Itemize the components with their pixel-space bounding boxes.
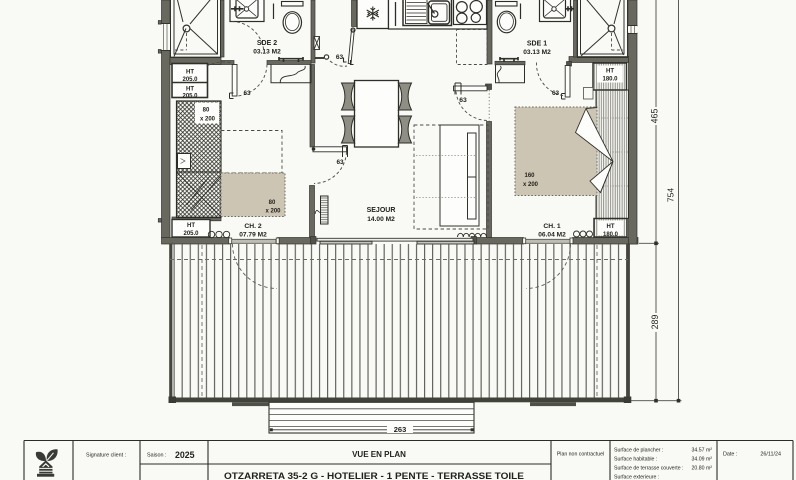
svg-text:34.09 m²: 34.09 m² xyxy=(692,457,713,463)
svg-text:Surface de plancher :: Surface de plancher : xyxy=(614,448,663,454)
svg-text:Surface de terrasse couverte :: Surface de terrasse couverte : xyxy=(614,466,684,472)
svg-text:80: 80 xyxy=(269,200,276,206)
svg-text:HT: HT xyxy=(186,70,194,76)
svg-text:180.0: 180.0 xyxy=(602,77,618,83)
svg-text:Saison :: Saison : xyxy=(147,453,166,459)
svg-text:465: 465 xyxy=(649,109,659,124)
svg-text:63: 63 xyxy=(336,54,344,61)
svg-text:754: 754 xyxy=(666,188,676,202)
svg-text:OTZARRETA 35-2 G - HOTELIER -: OTZARRETA 35-2 G - HOTELIER - 1 PENTE - … xyxy=(224,471,524,480)
svg-text:SDE 1: SDE 1 xyxy=(527,41,547,48)
svg-text:205.0: 205.0 xyxy=(182,94,198,100)
svg-text:VUE EN PLAN: VUE EN PLAN xyxy=(352,450,406,459)
svg-text:34.57 m²: 34.57 m² xyxy=(692,448,713,454)
svg-text:14.00 M2: 14.00 M2 xyxy=(367,216,395,223)
svg-text:SEJOUR: SEJOUR xyxy=(367,207,396,214)
svg-text:80: 80 xyxy=(203,108,210,114)
svg-text:06.04 M2: 06.04 M2 xyxy=(538,232,566,239)
svg-text:205.0: 205.0 xyxy=(183,231,199,237)
svg-text:Signature client :: Signature client : xyxy=(86,453,126,459)
svg-text:63: 63 xyxy=(243,90,251,97)
svg-text:x 200: x 200 xyxy=(523,182,539,188)
svg-text:x 200: x 200 xyxy=(265,209,281,215)
svg-text:HT: HT xyxy=(186,87,194,93)
svg-text:03.13 M2: 03.13 M2 xyxy=(523,49,551,56)
svg-text:07.79 M2: 07.79 M2 xyxy=(239,232,267,239)
svg-text:03.13 M2: 03.13 M2 xyxy=(253,49,281,56)
svg-text:HT: HT xyxy=(607,224,615,230)
svg-text:HT: HT xyxy=(606,69,614,75)
svg-text:160: 160 xyxy=(524,173,535,179)
svg-text:2025: 2025 xyxy=(175,450,195,460)
svg-text:HT: HT xyxy=(187,223,195,229)
svg-text:289: 289 xyxy=(650,315,660,330)
svg-text:Date :: Date : xyxy=(723,452,737,458)
svg-text:63: 63 xyxy=(552,90,560,97)
svg-text:63: 63 xyxy=(336,159,344,166)
svg-text:63: 63 xyxy=(459,97,467,104)
svg-text:20.80 m²: 20.80 m² xyxy=(692,466,713,472)
svg-text:CH. 2: CH. 2 xyxy=(244,223,262,230)
svg-text:Surface exterieure :: Surface exterieure : xyxy=(614,475,659,480)
svg-text:Plan non contractuel: Plan non contractuel xyxy=(557,452,604,458)
svg-text:Surface habitable :: Surface habitable : xyxy=(614,457,657,463)
svg-text:180.0: 180.0 xyxy=(603,232,619,238)
svg-text:SDE 2: SDE 2 xyxy=(257,40,277,47)
svg-text:205.0: 205.0 xyxy=(182,77,198,83)
svg-text:CH. 1: CH. 1 xyxy=(543,223,561,230)
svg-text:263: 263 xyxy=(394,425,407,434)
svg-text:26/11/24: 26/11/24 xyxy=(760,452,781,458)
svg-text:x 200: x 200 xyxy=(200,117,216,123)
